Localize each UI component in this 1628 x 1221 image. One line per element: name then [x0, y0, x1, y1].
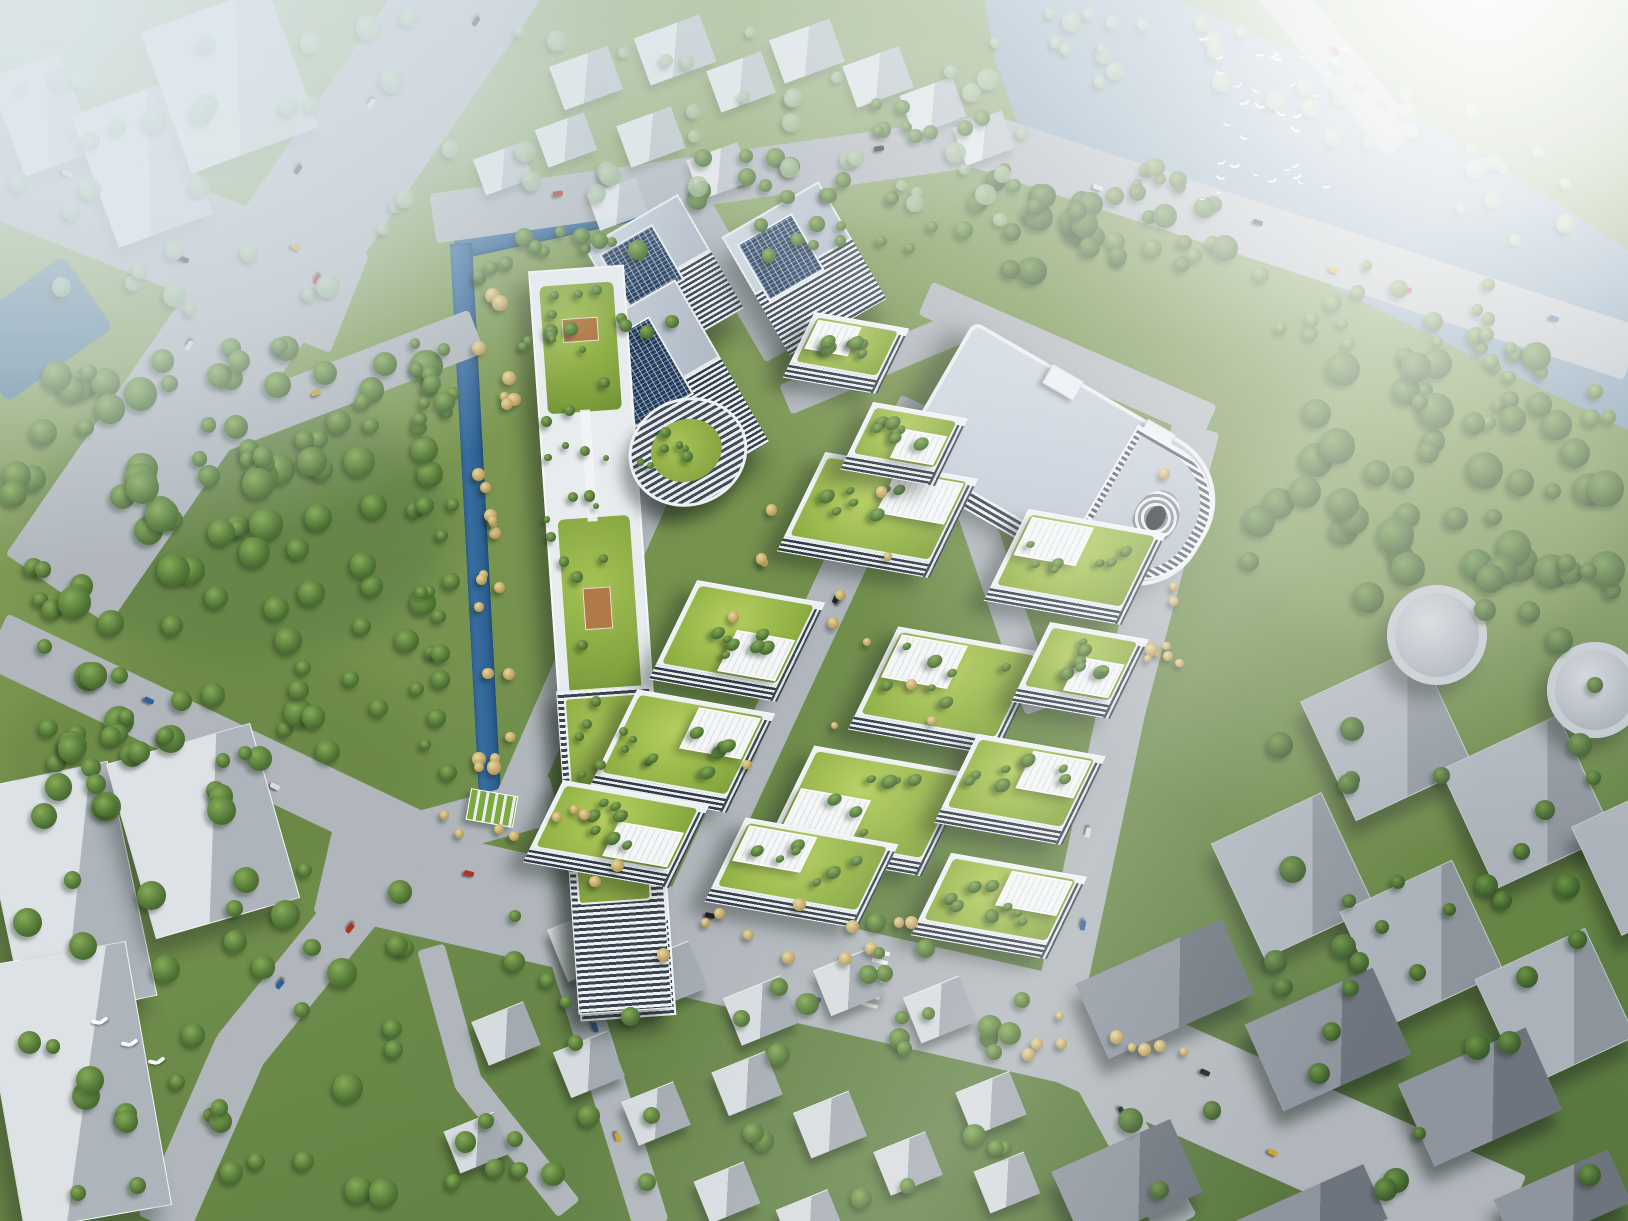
- tree: [363, 418, 379, 434]
- tree: [885, 191, 899, 205]
- tree: [694, 149, 712, 167]
- tree: [1463, 412, 1486, 435]
- tree: [370, 699, 388, 717]
- tree: [304, 96, 320, 112]
- tree: [383, 1019, 402, 1038]
- tree: [986, 1044, 1002, 1060]
- tree: [344, 446, 375, 477]
- tree: [686, 104, 701, 119]
- tree: [846, 920, 859, 933]
- tree: [541, 1162, 565, 1186]
- tree: [1194, 197, 1215, 218]
- tree: [46, 1039, 61, 1054]
- tree: [201, 417, 216, 432]
- tree: [1583, 409, 1600, 426]
- tree: [628, 240, 648, 260]
- tree: [271, 338, 288, 355]
- tree: [1418, 441, 1439, 462]
- tree: [1153, 204, 1177, 228]
- tree: [518, 342, 527, 351]
- tree: [994, 166, 1011, 183]
- tree: [1169, 171, 1187, 189]
- tree: [1588, 384, 1603, 399]
- tree: [1144, 655, 1151, 662]
- tree: [743, 930, 753, 940]
- tree: [504, 951, 525, 972]
- tree: [1579, 1164, 1601, 1186]
- tree: [70, 66, 94, 90]
- tree: [249, 508, 282, 541]
- tree: [766, 504, 777, 515]
- tree: [1267, 732, 1293, 758]
- tree: [993, 213, 1007, 227]
- tree: [728, 611, 739, 622]
- tree: [1236, 26, 1248, 38]
- tree: [1586, 770, 1601, 785]
- tree: [589, 876, 601, 888]
- tree: [482, 668, 493, 679]
- tree: [305, 504, 332, 531]
- tree: [1398, 102, 1417, 121]
- tree: [759, 179, 772, 192]
- tree: [780, 190, 795, 205]
- tree: [1212, 235, 1238, 261]
- tree: [455, 829, 464, 838]
- tree: [574, 290, 583, 299]
- tree: [202, 683, 225, 706]
- tree: [977, 69, 998, 90]
- tree: [603, 455, 609, 461]
- tree: [428, 709, 446, 727]
- tree: [754, 218, 768, 232]
- tree: [808, 240, 818, 250]
- tree: [487, 760, 501, 774]
- tree: [124, 377, 158, 411]
- tree: [224, 415, 248, 439]
- tree: [988, 1140, 1004, 1156]
- tree: [1174, 256, 1189, 271]
- tree: [1484, 354, 1498, 368]
- tree: [248, 1153, 265, 1170]
- tree: [1338, 774, 1358, 794]
- flying-bird: [1298, 54, 1306, 59]
- tree: [522, 171, 542, 191]
- tree: [1302, 399, 1331, 428]
- tree: [264, 372, 291, 399]
- tree: [955, 221, 973, 239]
- tree: [480, 482, 491, 493]
- tree: [161, 375, 178, 392]
- tree: [198, 465, 220, 487]
- tree: [1500, 406, 1526, 432]
- tree: [400, 8, 419, 27]
- tree: [959, 164, 970, 175]
- tree: [1466, 452, 1503, 489]
- tree: [509, 831, 518, 840]
- tree: [1513, 843, 1529, 859]
- tree: [410, 362, 423, 375]
- tree: [1476, 564, 1505, 593]
- tree: [242, 468, 274, 500]
- tree: [831, 722, 838, 729]
- roof-sport-court: [582, 586, 613, 630]
- tree: [333, 1073, 362, 1102]
- tree: [876, 236, 886, 246]
- tree: [1162, 642, 1171, 651]
- tree: [275, 627, 302, 654]
- tree: [1482, 278, 1495, 291]
- tree: [762, 248, 776, 262]
- tree: [395, 629, 418, 652]
- tree: [1374, 1178, 1397, 1201]
- tree: [82, 132, 99, 149]
- tree: [313, 361, 337, 385]
- tree: [126, 471, 159, 504]
- tree: [239, 537, 270, 568]
- tree: [1545, 483, 1561, 499]
- tree: [1319, 428, 1355, 464]
- tree: [895, 1011, 908, 1024]
- tree: [86, 774, 106, 794]
- tree: [547, 310, 557, 320]
- tree: [101, 726, 121, 746]
- tree: [809, 216, 824, 231]
- tree: [998, 1022, 1021, 1045]
- tree: [876, 486, 887, 497]
- tree: [1301, 98, 1320, 117]
- tree: [835, 590, 845, 600]
- tree: [739, 149, 753, 163]
- tree: [1503, 371, 1515, 383]
- tree: [550, 291, 559, 300]
- tree: [1008, 179, 1021, 192]
- tree: [895, 100, 910, 115]
- tree: [1275, 322, 1287, 334]
- tree: [1322, 1022, 1341, 1041]
- tree: [411, 436, 438, 463]
- tree: [546, 532, 556, 542]
- tree: [492, 295, 508, 311]
- tree: [45, 773, 73, 801]
- tree: [353, 618, 371, 636]
- tree: [591, 232, 608, 249]
- tree: [432, 670, 451, 689]
- tree: [302, 287, 317, 302]
- tree: [511, 1162, 527, 1178]
- tree: [896, 180, 907, 191]
- tree: [1433, 336, 1444, 347]
- tree: [851, 1188, 872, 1209]
- tree: [298, 580, 324, 606]
- tree: [1325, 129, 1343, 147]
- tree: [1016, 126, 1029, 139]
- tree: [541, 416, 552, 427]
- tree: [990, 37, 1001, 48]
- tree: [637, 458, 644, 465]
- tree: [1580, 563, 1596, 579]
- tree: [756, 553, 767, 564]
- tree: [39, 719, 57, 737]
- tree: [643, 1107, 660, 1124]
- tree: [1106, 16, 1119, 29]
- tree: [388, 880, 412, 904]
- tree: [905, 243, 915, 253]
- tree: [356, 15, 382, 41]
- tree: [58, 735, 85, 762]
- tree: [31, 803, 57, 829]
- tree: [1014, 992, 1030, 1008]
- tree: [1353, 582, 1384, 613]
- tree: [1027, 198, 1043, 214]
- tree: [660, 444, 669, 453]
- tree: [415, 586, 428, 599]
- tree: [1408, 129, 1419, 140]
- tree: [1062, 12, 1082, 32]
- tree: [745, 27, 755, 37]
- tree: [145, 498, 179, 532]
- tree: [579, 771, 586, 778]
- tree: [455, 1131, 476, 1152]
- tree: [165, 241, 184, 260]
- tree: [423, 375, 440, 392]
- tree: [420, 739, 431, 750]
- tree: [157, 727, 173, 743]
- tree: [1342, 894, 1356, 908]
- tree: [47, 25, 63, 41]
- tree: [1177, 235, 1192, 250]
- tree: [1128, 1043, 1136, 1051]
- tree: [859, 965, 878, 984]
- tree: [906, 195, 923, 212]
- tree: [564, 405, 575, 416]
- tree: [514, 26, 525, 37]
- tree: [1137, 18, 1150, 31]
- tree: [499, 256, 513, 270]
- tree: [1377, 517, 1415, 555]
- tree: [157, 554, 190, 587]
- tree: [485, 1159, 504, 1178]
- tree: [205, 586, 228, 609]
- tree: [1363, 135, 1377, 149]
- tree: [1556, 215, 1574, 233]
- tree: [1493, 891, 1512, 910]
- tree: [1485, 509, 1502, 526]
- tree: [1527, 392, 1552, 417]
- tree: [1159, 468, 1170, 479]
- tree: [1465, 1034, 1490, 1059]
- tree: [197, 35, 215, 53]
- tree: [681, 55, 694, 68]
- tree: [410, 338, 420, 348]
- tree: [1390, 280, 1408, 298]
- tree: [828, 617, 839, 628]
- tree: [505, 732, 516, 743]
- tree: [916, 939, 935, 958]
- tree: [1560, 438, 1590, 468]
- tree: [432, 610, 446, 624]
- tree: [638, 1173, 656, 1191]
- tree: [1154, 1040, 1166, 1052]
- tree: [42, 361, 72, 391]
- tree: [224, 930, 247, 953]
- tree: [502, 371, 516, 385]
- tree: [1516, 966, 1538, 988]
- aerial-render: Aerial architectural rendering of a rive…: [0, 0, 1628, 1221]
- storage-tank: [1387, 585, 1487, 685]
- tree: [182, 1023, 206, 1047]
- tree: [302, 705, 326, 729]
- tree: [98, 610, 123, 635]
- tree: [894, 917, 904, 927]
- tree: [1498, 163, 1508, 173]
- tree: [226, 900, 243, 917]
- tree: [369, 1178, 398, 1207]
- tree: [151, 349, 174, 372]
- tree: [95, 394, 124, 423]
- tree: [13, 908, 42, 937]
- tree: [599, 164, 621, 186]
- tree: [975, 184, 996, 205]
- tree: [593, 503, 599, 509]
- tree: [1480, 328, 1494, 342]
- tree: [1337, 318, 1348, 329]
- tree: [544, 454, 551, 461]
- tree: [1018, 257, 1046, 285]
- tree: [488, 516, 497, 525]
- tree: [1482, 312, 1496, 326]
- tree: [303, 939, 321, 957]
- tree: [129, 1177, 146, 1194]
- tree: [927, 716, 936, 725]
- tree: [1150, 1181, 1168, 1199]
- tree: [640, 325, 654, 339]
- tree: [1568, 930, 1587, 949]
- tree: [544, 516, 550, 522]
- tree: [552, 812, 562, 822]
- tree: [435, 392, 455, 412]
- tree: [796, 993, 819, 1016]
- tree: [1587, 677, 1603, 693]
- tree: [1138, 1043, 1151, 1056]
- tree: [1240, 552, 1259, 571]
- tree: [294, 1002, 310, 1018]
- tree: [577, 640, 587, 650]
- tree: [657, 948, 671, 962]
- tree: [361, 493, 387, 519]
- tree: [884, 552, 893, 561]
- tree: [515, 141, 535, 161]
- tree: [443, 573, 460, 590]
- tree: [436, 530, 447, 541]
- flying-bird: [1284, 167, 1291, 171]
- tree: [900, 1178, 915, 1193]
- tree: [742, 760, 752, 770]
- tree: [191, 102, 213, 124]
- tree: [298, 863, 312, 877]
- tree: [1097, 42, 1107, 52]
- tree: [1297, 78, 1315, 96]
- tree: [442, 140, 460, 158]
- tree: [529, 240, 543, 254]
- tree: [410, 682, 424, 696]
- tree: [619, 727, 629, 737]
- tree: [1602, 410, 1616, 424]
- tree: [0, 481, 27, 508]
- tree: [682, 451, 693, 462]
- tree: [327, 958, 357, 988]
- tree: [494, 582, 505, 593]
- tree: [831, 72, 842, 83]
- tree: [835, 235, 847, 247]
- tree: [1203, 1101, 1221, 1119]
- tree: [897, 1041, 912, 1056]
- tree: [80, 662, 106, 688]
- tree: [52, 277, 71, 296]
- tree: [64, 871, 81, 888]
- tree: [69, 932, 97, 960]
- tree: [591, 696, 602, 707]
- flying-bird: [1229, 162, 1240, 168]
- tree: [1424, 312, 1443, 331]
- tree: [1546, 627, 1573, 654]
- tree: [489, 527, 501, 539]
- tree: [1274, 978, 1293, 997]
- tree: [287, 538, 309, 560]
- tree: [473, 270, 484, 281]
- tree: [474, 602, 484, 612]
- tree: [220, 1161, 243, 1184]
- tree: [1308, 1063, 1330, 1085]
- tree: [559, 556, 569, 566]
- tree: [1175, 659, 1183, 667]
- tree: [595, 760, 605, 770]
- tree: [1356, 74, 1370, 88]
- tree: [621, 1007, 640, 1026]
- tree: [1391, 552, 1425, 586]
- tree: [905, 916, 918, 929]
- tree: [419, 397, 430, 408]
- tree: [1475, 874, 1498, 897]
- tree: [35, 561, 51, 577]
- tree: [297, 447, 326, 476]
- tree: [1351, 285, 1365, 299]
- tree: [70, 1185, 86, 1201]
- tree: [211, 1099, 228, 1116]
- tree: [582, 719, 592, 729]
- tree: [1056, 1012, 1064, 1020]
- tree: [1106, 62, 1124, 80]
- tree: [316, 740, 340, 764]
- tree: [354, 394, 371, 411]
- tree: [1342, 980, 1359, 997]
- tree: [1532, 146, 1544, 158]
- tree: [592, 285, 602, 295]
- tree: [1456, 203, 1466, 213]
- tree: [549, 335, 556, 342]
- tree: [985, 909, 998, 922]
- tree: [110, 118, 127, 135]
- tree: [1083, 8, 1094, 19]
- tree: [599, 554, 608, 563]
- tree: [908, 129, 923, 144]
- tree: [387, 935, 408, 956]
- tree: [547, 30, 568, 51]
- tree: [289, 680, 309, 700]
- tree: [1180, 1047, 1188, 1055]
- tree: [416, 497, 433, 514]
- tree: [216, 753, 231, 768]
- tree: [385, 1040, 404, 1059]
